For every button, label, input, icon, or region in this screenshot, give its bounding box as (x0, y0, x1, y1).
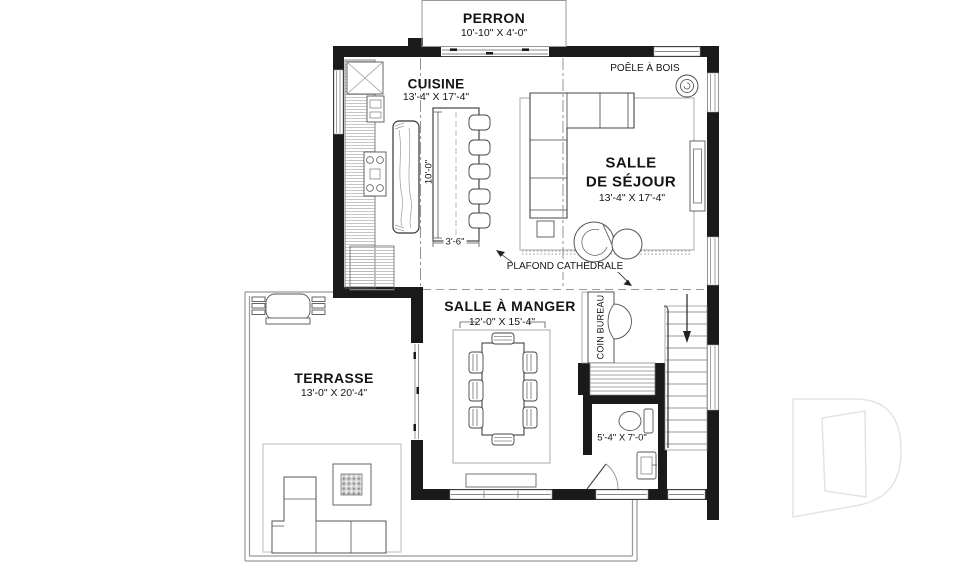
salle-a-manger-dims: 12'-0" X 15'-4" (469, 317, 535, 328)
bathroom-door (587, 464, 618, 489)
island-width-dim: 3'-6" (444, 237, 467, 247)
wall-oven-icon (367, 96, 384, 122)
coin-bureau-label: COIN BUREAU (597, 295, 606, 360)
perron-label: PERRON (463, 11, 525, 25)
armchair (574, 222, 614, 262)
perron-dims: 10'-10" X 4'-0" (461, 28, 527, 39)
bathroom-dims: 5'-4" X 7'-0" (597, 433, 646, 443)
outdoor-dining-set (252, 294, 325, 324)
terrasse-dims: 13'-0" X 20'-4" (301, 388, 367, 399)
sejour-label-line2: DE SÉJOUR (586, 175, 676, 190)
floor-plan-canvas: PERRON 10'-10" X 4'-0" CUISINE 13'-4" X … (0, 0, 960, 569)
kitchen-island (393, 121, 419, 233)
toilet-icon (619, 409, 653, 433)
wood-stove-icon (676, 75, 698, 97)
cuisine-dims: 13'-4" X 17'-4" (403, 92, 469, 103)
cuisine-label: CUISINE (408, 77, 465, 91)
basement-stair-hatch (590, 363, 655, 395)
dining-table (482, 343, 524, 435)
terrasse-furniture (252, 294, 401, 553)
sejour-label-line1: SALLE (605, 156, 656, 171)
staircase (664, 294, 707, 450)
dining-room-furniture (453, 330, 550, 487)
sejour-dims: 13'-4" X 17'-4" (599, 193, 665, 204)
terrasse-label: TERRASSE (294, 371, 373, 385)
fire-table-icon (333, 464, 371, 505)
desk-chair (608, 304, 632, 339)
fridge-icon (347, 62, 383, 94)
sink-icon (637, 452, 657, 479)
office-nook (582, 292, 655, 395)
window-seat (466, 474, 536, 487)
plafond-cathedrale-label: PLAFOND CATHÉDRALE (505, 262, 626, 272)
brand-watermark-icon (793, 399, 901, 517)
salle-a-manger-label: SALLE À MANGER (444, 299, 576, 313)
island-length-dim: 10'-0" (424, 160, 434, 184)
bathroom-fixtures (587, 409, 657, 489)
poele-a-bois-label: POÊLE À BOIS (610, 64, 679, 74)
plan-linework (0, 0, 960, 569)
stove-icon (364, 152, 386, 196)
side-table (537, 221, 554, 237)
tv-unit (690, 141, 705, 211)
ottoman (612, 229, 642, 259)
